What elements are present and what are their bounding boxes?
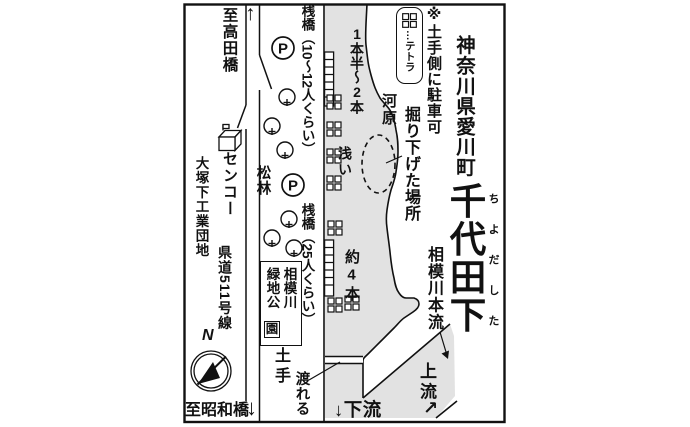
downstream-label: ↓下流 xyxy=(334,401,382,420)
factory-icon xyxy=(219,125,241,151)
pine-grove-label: 松林 xyxy=(255,165,270,196)
rods-lower-label: 約4本 xyxy=(344,249,359,304)
to-showa-bridge-label: 至昭和橋 xyxy=(185,403,249,419)
svg-text:P: P xyxy=(288,178,298,195)
parking-icon-upper: P xyxy=(272,37,294,59)
pier-upper-label: 桟橋（10〜12人くらい） xyxy=(300,4,314,156)
spot-title: 千代田下 xyxy=(446,182,483,334)
prefecture-town-label: 神奈川県愛川町 xyxy=(453,35,473,177)
fishing-map: P P 神奈川県愛川町 千代田下 ちよだした ※土手側に駐車可 …テトラ xyxy=(0,0,690,427)
park-name-box: 相模川 緑地公 園 xyxy=(260,261,302,346)
pier-lower-icon xyxy=(325,240,334,296)
tetra-legend-label: …テトラ xyxy=(404,30,415,72)
park-name-col-left: 緑地公 xyxy=(265,267,279,309)
main-stream-label: 相模川本流 xyxy=(425,246,441,330)
compass-north-label: N xyxy=(202,328,214,344)
parking-icon-lower: P xyxy=(282,174,304,196)
kawara-label: 河原 xyxy=(381,93,396,127)
svg-text:P: P xyxy=(278,41,288,58)
upstream-arrow: ↗ xyxy=(423,399,438,417)
parking-note: ※土手側に駐車可 xyxy=(426,5,441,134)
to-takata-bridge-label: 至高田橋 xyxy=(221,7,237,73)
crossing-bridge xyxy=(325,357,363,364)
compass-icon xyxy=(191,351,231,391)
route-name-label: 県道511号線 xyxy=(218,245,232,331)
senko-label: センコー xyxy=(222,151,237,217)
rods-upper-label: 1本半〜2本 xyxy=(350,26,364,114)
road-up-arrow: ↑ xyxy=(245,3,256,24)
shallow-label: 浅い xyxy=(338,146,352,178)
dug-down-spot-label: 掘り下げた場所 xyxy=(402,106,418,222)
cross-here-label: 渡れる xyxy=(294,371,309,416)
map-drawing: P P xyxy=(0,0,690,427)
tetra-legend-box: …テトラ xyxy=(396,7,423,84)
spot-title-furigana: ちよだした xyxy=(487,193,498,346)
road xyxy=(238,5,272,421)
industrial-estate-label: 大塚下工業団地 xyxy=(194,156,208,258)
tetra-legend-icon xyxy=(402,13,417,28)
park-name-boxed-char: 園 xyxy=(264,321,280,338)
upstream-label: 上流 xyxy=(418,362,435,403)
bank-label: 土手 xyxy=(272,347,288,387)
pier-lower-label: 桟橋（25人くらい） xyxy=(300,203,314,326)
park-name-col-right: 相模川 xyxy=(282,267,296,309)
